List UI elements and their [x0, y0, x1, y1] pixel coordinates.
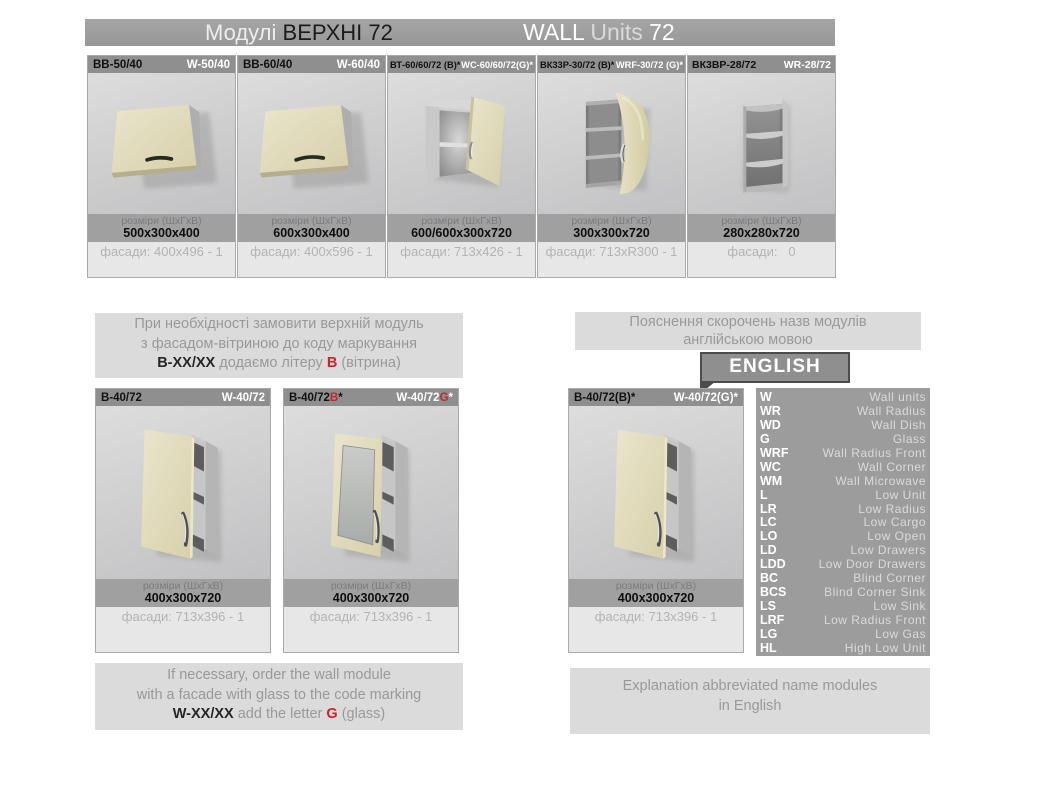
module-code-uk: ВК33Р-30/72 (В)*: [540, 60, 614, 70]
abbreviation-key: WM: [760, 474, 782, 488]
facades-row: фасади: 713x396 - 1: [284, 607, 458, 652]
abbreviation-meaning: Wall Radius: [857, 404, 926, 418]
abbreviation-row: LSLow Sink: [760, 599, 926, 613]
module-card-bk33r-30-72: ВК33Р-30/72 (В)* WRF-30/72 (G)* розміри …: [537, 55, 686, 278]
module-code-bar: В-40/72В* W-40/72G*: [284, 389, 458, 406]
facades-row: фасади: 713xR300 - 1: [538, 242, 685, 277]
dimensions-bar: розміри (ШхГхВ) 500x300x400: [88, 214, 235, 242]
code-en-base: W-40/72(G)*: [674, 392, 738, 404]
note-en-line1: If necessary, order the wall module: [95, 666, 463, 686]
code-en-red: G: [440, 392, 449, 404]
module-code-uk: ВВ-60/40: [243, 59, 292, 71]
code-uk-tail: *: [338, 392, 342, 404]
module-code-bar: ВК3ВР-28/72 WR-28/72: [688, 56, 835, 73]
legend-heading-line2: англійською мовою: [575, 331, 921, 349]
dimensions-value: 500x300x400: [88, 227, 235, 240]
footer-en: Explanation abbreviated name modules in …: [570, 668, 930, 734]
dimensions-value: 400x300x720: [284, 592, 458, 605]
cabinet-door-ajar-illustration: [569, 406, 743, 579]
code-uk-base: В-40/72: [289, 392, 330, 404]
english-badge: ENGLISH: [700, 352, 850, 383]
abbreviation-meaning: Low Gas: [875, 627, 926, 641]
abbreviation-meaning: Wall Dish: [871, 418, 926, 432]
facades-row: фасади: 400x496 - 1: [88, 242, 235, 277]
note-en-line2: with a facade with glass to the code mar…: [95, 686, 463, 706]
cabinet-corner-open-illustration: [388, 73, 535, 214]
module-code-uk: ВТ-60/60/72 (В)*: [390, 60, 460, 70]
module-card-bk3br-28-72: ВК3ВР-28/72 WR-28/72 розміри (ШхГхВ) 280…: [687, 55, 836, 278]
abbreviation-meaning: Low Radius Front: [824, 613, 926, 627]
note-en: If necessary, order the wall module with…: [95, 663, 463, 730]
dimensions-bar: розміри (ШхГхВ) 600x300x400: [238, 214, 385, 242]
cabinet-open-shelf-illustration: [688, 73, 835, 214]
abbreviation-row: BCBlind Corner: [760, 571, 926, 585]
dimensions-bar: розміри (ШхГхВ) 400x300x720: [569, 579, 743, 607]
abbreviation-row: LCLow Cargo: [760, 515, 926, 529]
note-uk-mid: додаємо літеру: [215, 355, 327, 371]
module-code-bar: ВВ-60/40 W-60/40: [238, 56, 385, 73]
module-code-uk: В-40/72(В)*: [574, 392, 635, 404]
page-header: Модулі ВЕРХНІ 72 WALL Units 72: [85, 19, 835, 46]
abbreviation-meaning: Blind Corner: [853, 571, 926, 585]
module-code-en: WC-60/60/72(G)*: [461, 60, 533, 70]
legend-heading-line1: Пояснення скорочень назв модулів: [575, 313, 921, 331]
abbreviation-key: WD: [760, 418, 781, 432]
abbreviation-row: WRFWall Radius Front: [760, 446, 926, 460]
abbreviation-key: LS: [760, 599, 776, 613]
abbreviation-meaning: Wall Corner: [858, 460, 926, 474]
abbreviation-key: WRF: [760, 446, 788, 460]
page-title-en: WALL Units 72: [523, 19, 675, 46]
module-card-bb-60-40: ВВ-60/40 W-60/40 розміри (ШхГхВ) 600x300…: [237, 55, 386, 278]
abbreviation-key: BC: [760, 571, 778, 585]
note-uk-red-letter: В: [327, 355, 337, 371]
footer-en-line1: Explanation abbreviated name modules: [570, 677, 930, 697]
module-card-b-40-72: В-40/72 W-40/72 розміри (ШхГхВ) 400x300x…: [95, 388, 271, 653]
abbreviation-key: LO: [760, 529, 777, 543]
legend-heading: Пояснення скорочень назв модулів англійс…: [575, 312, 921, 350]
abbreviation-key: HL: [760, 641, 777, 655]
module-code-en: WR-28/72: [784, 59, 831, 71]
abbreviation-meaning: Blind Corner Sink: [824, 585, 926, 599]
note-uk-code: В-ХХ/ХХ: [157, 355, 215, 371]
abbreviation-row: WWall units: [760, 390, 926, 404]
note-en-line3: W-XX/XX add the letter G (glass): [95, 705, 463, 725]
page-title-uk: Модулі ВЕРХНІ 72: [205, 20, 393, 46]
abbreviation-meaning: Low Unit: [875, 488, 926, 502]
abbreviation-row: LDLow Drawers: [760, 543, 926, 557]
module-card-b-40-72-glass: В-40/72В* W-40/72G* розміри (ШхГхВ) 400x…: [283, 388, 459, 653]
note-uk-tail: (вітрина): [337, 355, 401, 371]
module-code-uk: ВВ-50/40: [93, 59, 142, 71]
abbreviation-row: LRLow Radius: [760, 502, 926, 516]
abbreviation-meaning: Glass: [893, 432, 926, 446]
abbreviation-key: LG: [760, 627, 777, 641]
page-title-en-bold: WALL: [523, 19, 584, 45]
dimensions-bar: розміри (ШхГхВ) 400x300x720: [96, 579, 270, 607]
module-code-bar: В-40/72 W-40/72: [96, 389, 270, 406]
abbreviation-meaning: Wall Radius Front: [823, 446, 926, 460]
abbreviation-key: WC: [760, 460, 781, 474]
dimensions-value: 280x280x720: [688, 227, 835, 240]
dimensions-bar: розміри (ШхГхВ) 600/600x300x720: [388, 214, 535, 242]
code-uk-base: В-40/72(В)*: [574, 392, 635, 404]
module-code-bar: ВК33Р-30/72 (В)* WRF-30/72 (G)*: [538, 56, 685, 73]
module-code-uk: ВК3ВР-28/72: [692, 59, 756, 71]
module-code-bar: ВВ-50/40 W-50/40: [88, 56, 235, 73]
page-title-uk-light: Модулі: [205, 20, 276, 45]
cabinet-radius-door-illustration: [538, 73, 685, 214]
code-en-base: W-40/72: [222, 392, 265, 404]
abbreviation-row: LLow Unit: [760, 488, 926, 502]
facades-row: фасади: 0: [688, 242, 835, 277]
module-card-b-40-72-b: В-40/72(В)* W-40/72(G)* розміри (ШхГхВ) …: [568, 388, 744, 653]
abbreviation-row: BCSBlind Corner Sink: [760, 585, 926, 599]
module-code-en: W-50/40: [187, 59, 230, 71]
module-card-bt-60-60-72: ВТ-60/60/72 (В)* WC-60/60/72(G)* розміри…: [387, 55, 536, 278]
code-uk-red: В: [330, 392, 338, 404]
module-code-bar: В-40/72(В)* W-40/72(G)*: [569, 389, 743, 406]
module-code-en: W-40/72G*: [396, 392, 453, 404]
dimensions-value: 600/600x300x720: [388, 227, 535, 240]
abbreviation-meaning: Low Radius: [858, 502, 926, 516]
module-code-en: W-40/72(G)*: [674, 392, 738, 404]
abbreviation-key: LDD: [760, 557, 786, 571]
abbreviation-meaning: Low Drawers: [850, 543, 926, 557]
abbreviation-key: W: [760, 390, 772, 404]
abbreviation-row: LGLow Gas: [760, 627, 926, 641]
abbreviation-meaning: Low Open: [867, 529, 926, 543]
code-en-tail: *: [449, 392, 453, 404]
module-code-bar: ВТ-60/60/72 (В)* WC-60/60/72(G)*: [388, 56, 535, 73]
abbreviation-key: LRF: [760, 613, 784, 627]
abbreviation-row: WDWall Dish: [760, 418, 926, 432]
cabinet-glass-door-illustration: [284, 406, 458, 579]
page-title-uk-bold: ВЕРХНІ 72: [283, 20, 393, 45]
abbreviation-meaning: Low Cargo: [863, 515, 926, 529]
note-uk-line1: При необхідності замовити верхній модуль: [95, 315, 463, 335]
abbreviation-meaning: Wall units: [869, 390, 926, 404]
abbreviation-key: WR: [760, 404, 781, 418]
note-uk-line2: з фасадом-вітриною до коду маркування: [95, 335, 463, 355]
abbreviation-meaning: Wall Microwave: [835, 474, 926, 488]
abbreviation-row: WRWall Radius: [760, 404, 926, 418]
abbreviation-row: WMWall Microwave: [760, 474, 926, 488]
abbreviation-key: L: [760, 488, 768, 502]
abbreviation-row: LDDLow Door Drawers: [760, 557, 926, 571]
note-en-mid: add the letter: [234, 706, 327, 722]
note-en-code: W-XX/XX: [173, 706, 234, 722]
module-code-en: W-60/40: [337, 59, 380, 71]
cabinet-flipup-illustration: [88, 73, 235, 214]
abbreviation-row: WCWall Corner: [760, 460, 926, 474]
dimensions-bar: розміри (ШхГхВ) 400x300x720: [284, 579, 458, 607]
abbreviation-key: LR: [760, 502, 777, 516]
cabinet-flipup-illustration: [238, 73, 385, 214]
dimensions-bar: розміри (ШхГхВ) 280x280x720: [688, 214, 835, 242]
module-code-uk: В-40/72: [101, 392, 142, 404]
dimensions-value: 400x300x720: [569, 592, 743, 605]
dimensions-value: 600x300x400: [238, 227, 385, 240]
abbreviation-meaning: Low Sink: [873, 599, 926, 613]
abbreviation-key: LD: [760, 543, 777, 557]
module-code-uk: В-40/72В*: [289, 392, 343, 404]
page-title-en-light: Units: [590, 19, 642, 45]
cabinet-door-ajar-illustration: [96, 406, 270, 579]
abbreviation-row: GGlass: [760, 432, 926, 446]
code-en-base: W-40/72: [396, 392, 439, 404]
note-uk-line3: В-ХХ/ХХ додаємо літеру В (вітрина): [95, 354, 463, 374]
abbreviation-meaning: High Low Unit: [845, 641, 926, 655]
module-code-en: W-40/72: [222, 392, 265, 404]
abbreviation-panel: WWall units WRWall Radius WDWall Dish GG…: [756, 388, 930, 656]
abbreviation-row: LOLow Open: [760, 529, 926, 543]
module-code-en: WRF-30/72 (G)*: [616, 60, 683, 70]
abbreviation-key: BCS: [760, 585, 786, 599]
footer-en-line2: in English: [570, 697, 930, 717]
facades-row: фасади: 713x426 - 1: [388, 242, 535, 277]
abbreviation-row: LRFLow Radius Front: [760, 613, 926, 627]
module-card-bb-50-40: ВВ-50/40 W-50/40 розміри (ШхГхВ) 500x300…: [87, 55, 236, 278]
dimensions-bar: розміри (ШхГхВ) 300x300x720: [538, 214, 685, 242]
page-title-en-num: 72: [649, 19, 675, 45]
abbreviation-meaning: Low Door Drawers: [819, 557, 926, 571]
dimensions-value: 300x300x720: [538, 227, 685, 240]
note-en-tail: (glass): [338, 706, 386, 722]
abbreviation-key: LC: [760, 515, 777, 529]
abbreviation-row: HLHigh Low Unit: [760, 641, 926, 655]
note-uk: При необхідності замовити верхній модуль…: [95, 313, 463, 378]
code-uk-base: В-40/72: [101, 392, 142, 404]
facades-row: фасади: 713x396 - 1: [96, 607, 270, 652]
note-en-red-letter: G: [326, 706, 337, 722]
facades-row: фасади: 400x596 - 1: [238, 242, 385, 277]
catalog-page: Модулі ВЕРХНІ 72 WALL Units 72 ВВ-50/40 …: [0, 0, 1046, 798]
dimensions-value: 400x300x720: [96, 592, 270, 605]
facades-row: фасади: 713x396 - 1: [569, 607, 743, 652]
abbreviation-key: G: [760, 432, 770, 446]
